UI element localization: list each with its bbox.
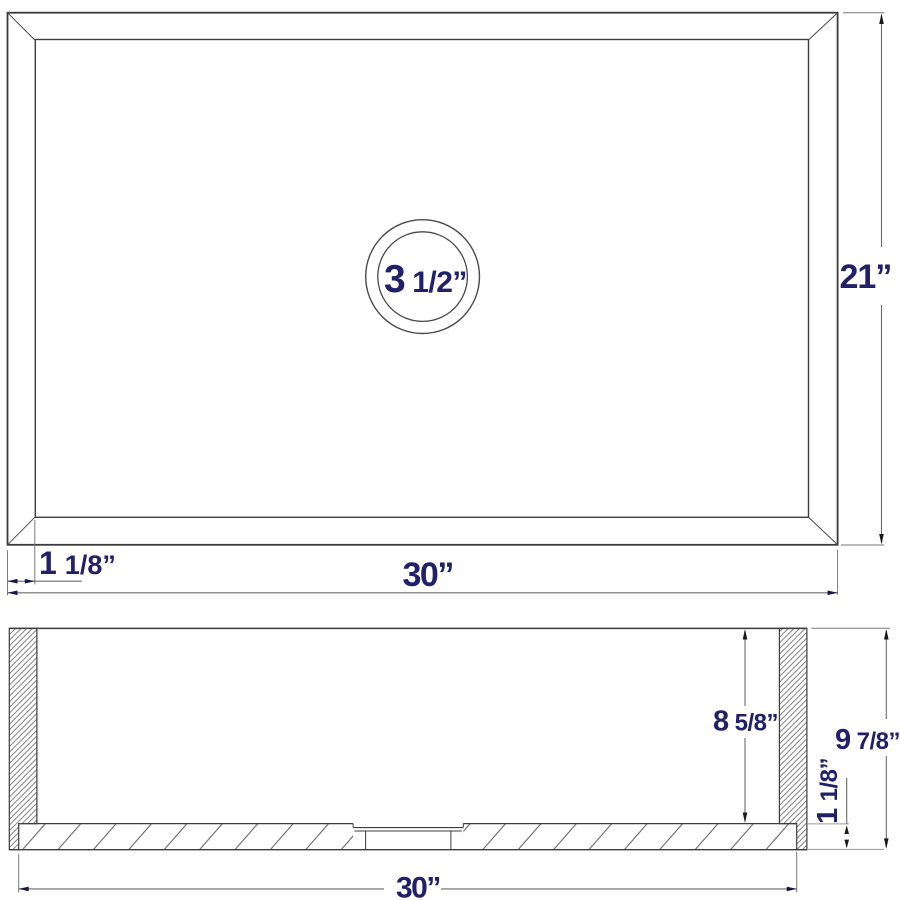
svg-text:30”: 30” [396, 872, 440, 900]
svg-text:97/8”: 97/8” [835, 724, 900, 756]
svg-text:85/8”: 85/8” [713, 706, 778, 738]
svg-text:21”: 21” [840, 258, 892, 296]
svg-text:11/8”: 11/8” [812, 758, 844, 824]
svg-text:11/8”: 11/8” [39, 545, 116, 581]
svg-text:30”: 30” [403, 556, 453, 594]
